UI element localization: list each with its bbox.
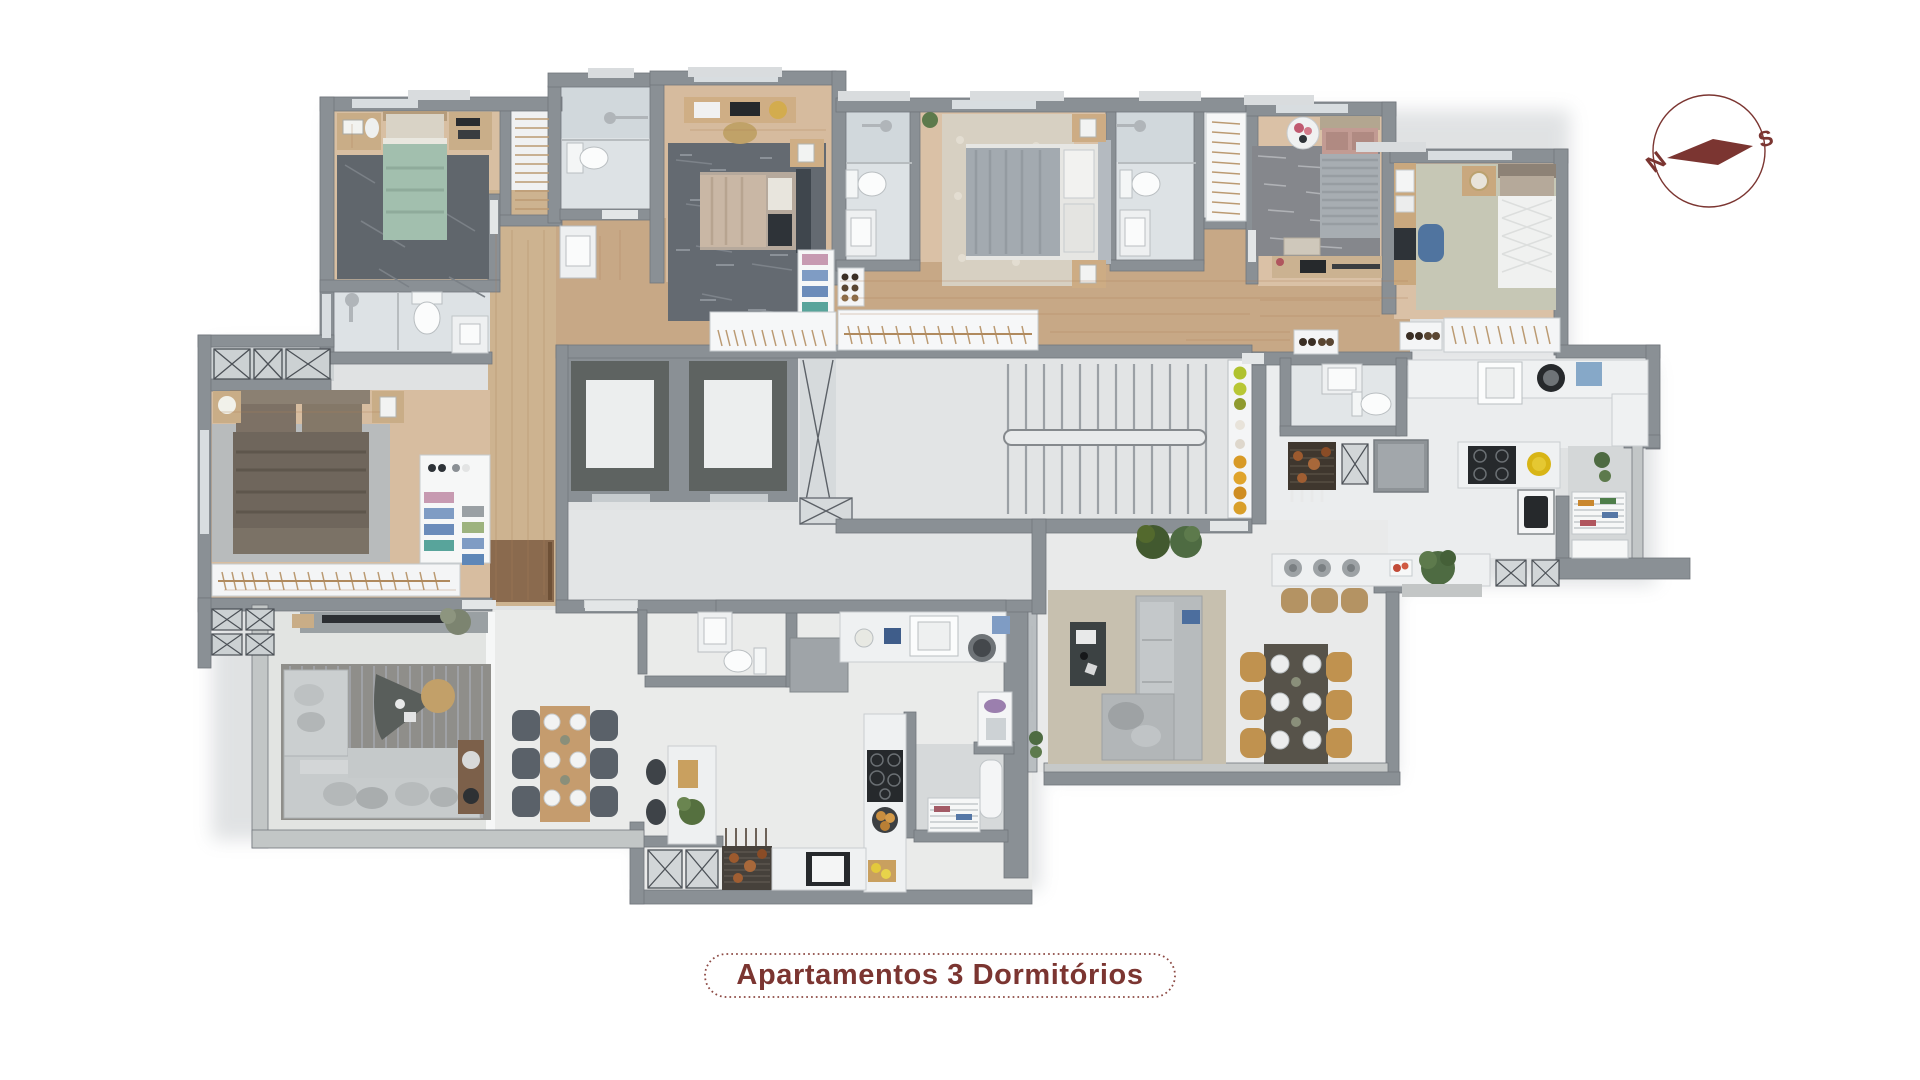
svg-text:Apartamentos 3 Dormitórios: Apartamentos 3 Dormitórios	[736, 959, 1143, 991]
